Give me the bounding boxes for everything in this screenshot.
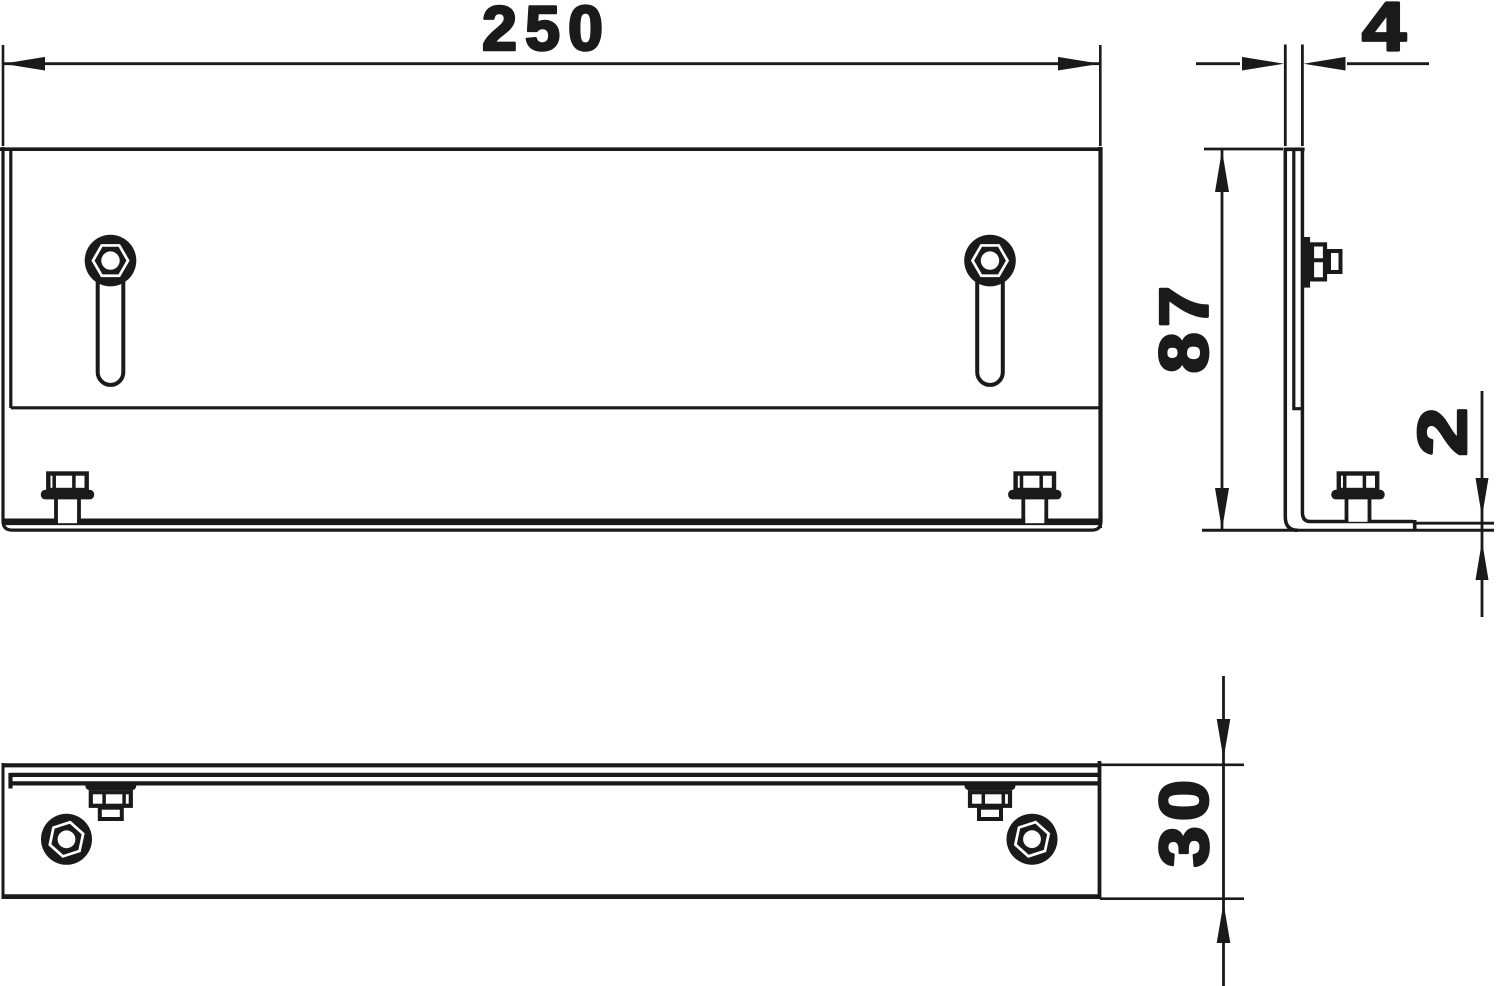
svg-text:4: 4 xyxy=(1362,0,1406,65)
svg-text:87: 87 xyxy=(1146,281,1223,374)
svg-text:250: 250 xyxy=(482,0,611,64)
svg-text:30: 30 xyxy=(1146,775,1223,868)
svg-text:2: 2 xyxy=(1403,407,1480,456)
